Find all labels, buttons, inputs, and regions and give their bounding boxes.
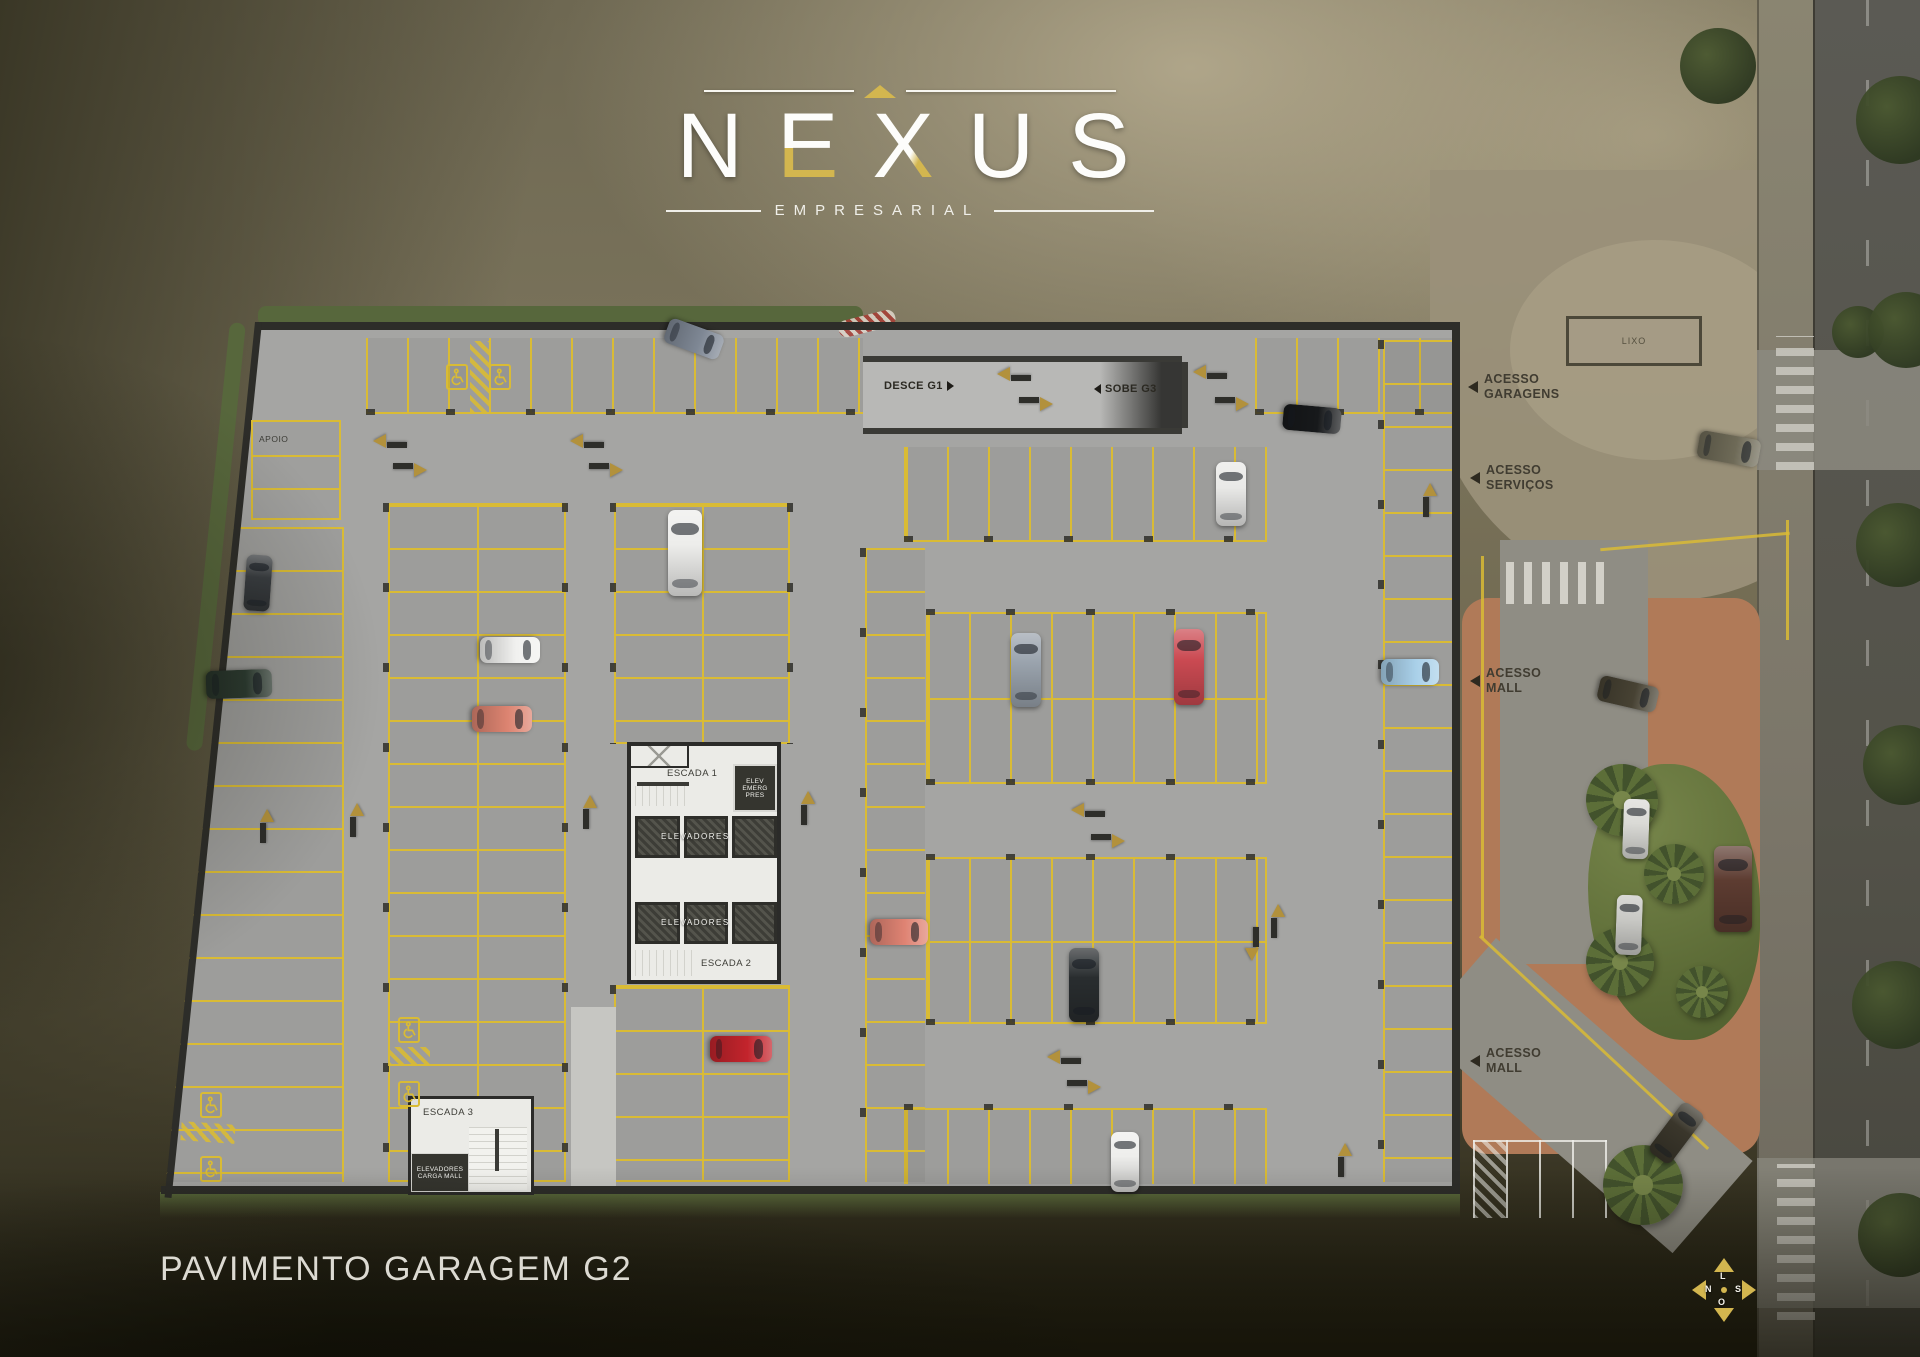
compass-arrow-left-icon	[1692, 1280, 1706, 1300]
access-mall-label: ACESSOMALL	[1470, 666, 1541, 696]
logo-wordmark: NEXUS	[620, 98, 1220, 194]
direction-arrow-left	[1047, 1050, 1081, 1064]
garage-floor-plan-rendering: LIXO DESCE G1 SOBE G3	[0, 0, 1920, 1357]
compass-letter-east: L	[1720, 1271, 1726, 1281]
direction-arrow-left	[1071, 803, 1105, 817]
page-title: PAVIMENTO GARAGEM G2	[160, 1250, 633, 1289]
compass-rose: L N S O	[1692, 1258, 1756, 1322]
direction-arrow-down	[1245, 927, 1259, 961]
direction-arrow-right	[1215, 397, 1249, 411]
triangle-left-icon	[1470, 472, 1480, 484]
compass-arrow-up-icon	[1714, 1258, 1734, 1272]
access-mall-label: ACESSOMALL	[1470, 1046, 1541, 1076]
direction-arrow-left	[570, 434, 604, 448]
direction-arrow-up	[801, 791, 815, 825]
direction-arrow-right	[393, 463, 427, 477]
direction-arrow-up	[583, 795, 597, 829]
logo-letter: U	[968, 95, 1068, 197]
direction-arrow-up	[1271, 904, 1285, 938]
direction-arrow-up	[260, 809, 274, 843]
direction-arrow-left	[997, 367, 1031, 381]
direction-arrow-right	[589, 463, 623, 477]
compass-letter-west: O	[1718, 1297, 1725, 1307]
direction-arrow-up	[1338, 1143, 1352, 1177]
access-services-label: ACESSOSERVIÇOS	[1470, 463, 1554, 493]
logo-subtitle: EMPRESARIAL	[775, 202, 981, 219]
direction-arrow-up	[350, 803, 364, 837]
compass-letter-north: N	[1705, 1284, 1712, 1294]
triangle-left-icon	[1470, 675, 1480, 687]
logo-letter-accent: X	[872, 95, 967, 197]
direction-arrow-left	[373, 434, 407, 448]
compass-arrow-right-icon	[1742, 1280, 1756, 1300]
compass-arrow-down-icon	[1714, 1308, 1734, 1322]
direction-arrow-right	[1091, 834, 1125, 848]
direction-arrow-right	[1019, 397, 1053, 411]
triangle-left-icon	[1468, 381, 1478, 393]
logo-subtitle-row: EMPRESARIAL	[600, 202, 1220, 219]
logo-letter-accent: E	[777, 95, 872, 197]
brand-logo: NEXUS EMPRESARIAL	[600, 84, 1220, 219]
compass-letter-south: S	[1735, 1284, 1741, 1294]
compass-center-dot	[1721, 1287, 1727, 1293]
triangle-left-icon	[1470, 1055, 1480, 1067]
direction-arrow-left	[1193, 365, 1227, 379]
access-garages-label: ACESSOGARAGENS	[1468, 372, 1559, 402]
direction-arrow-up	[1423, 483, 1437, 517]
direction-arrow-right	[1067, 1080, 1101, 1094]
logo-letter: S	[1068, 95, 1163, 197]
logo-letter: N	[676, 95, 776, 197]
